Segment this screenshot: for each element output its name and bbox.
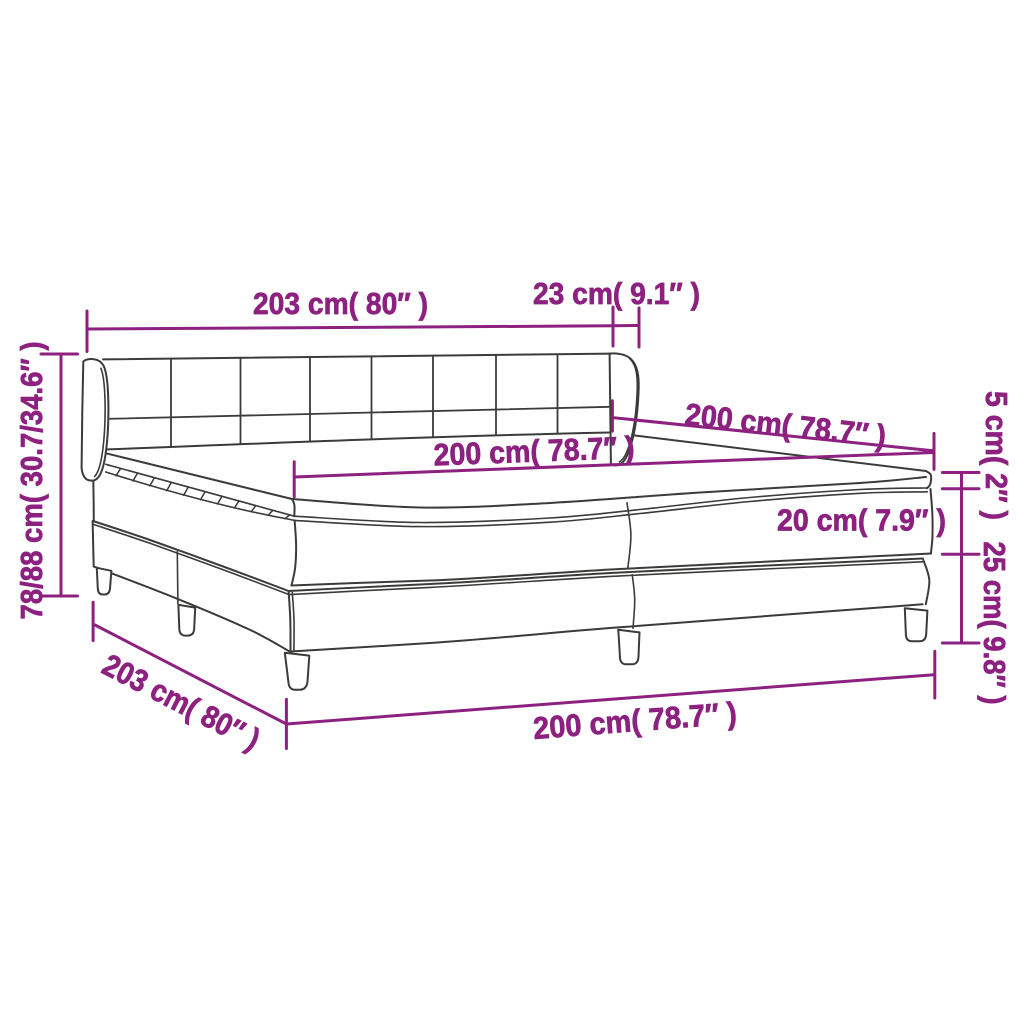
svg-text:78/88 cm( 30.7/34.6″ ): 78/88 cm( 30.7/34.6″ ) [14, 342, 49, 620]
svg-text:23 cm( 9.1″ ): 23 cm( 9.1″ ) [533, 276, 700, 311]
svg-text:5 cm( 2″ ): 5 cm( 2″ ) [979, 391, 1014, 520]
svg-text:203 cm( 80″ ): 203 cm( 80″ ) [253, 286, 428, 321]
svg-text:25 cm( 9.8″ ): 25 cm( 9.8″ ) [977, 542, 1012, 705]
svg-text:20 cm( 7.9″ ): 20 cm( 7.9″ ) [777, 503, 946, 538]
